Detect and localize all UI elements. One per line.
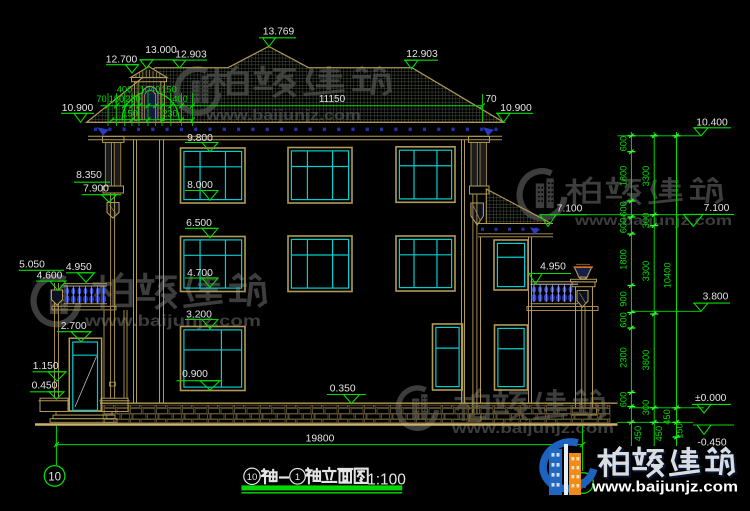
svg-text:7.900: 7.900 (83, 183, 109, 194)
svg-text:450: 450 (662, 409, 672, 425)
svg-text:10: 10 (48, 471, 61, 483)
svg-text:1800: 1800 (618, 166, 628, 187)
svg-text:13.769: 13.769 (263, 26, 295, 37)
svg-text:150: 150 (109, 94, 125, 104)
svg-text:150: 150 (161, 85, 177, 95)
svg-text:0.450: 0.450 (32, 380, 58, 391)
svg-text:1800: 1800 (618, 249, 628, 270)
svg-text:10.900: 10.900 (500, 103, 532, 114)
svg-text:10.400: 10.400 (696, 117, 728, 128)
svg-text:70: 70 (96, 94, 106, 104)
svg-text:450: 450 (654, 426, 664, 442)
svg-text:3800: 3800 (641, 350, 651, 371)
svg-text:300: 300 (641, 400, 651, 416)
svg-text:1040: 1040 (140, 85, 161, 95)
svg-text:12.903: 12.903 (175, 49, 207, 60)
svg-text:3.200: 3.200 (186, 309, 212, 320)
svg-text:230: 230 (125, 94, 141, 104)
svg-text:0.350: 0.350 (330, 384, 356, 395)
svg-text:900: 900 (618, 291, 628, 307)
svg-text:0.900: 0.900 (182, 369, 208, 380)
svg-text:3300: 3300 (641, 261, 651, 282)
svg-text:5.050: 5.050 (19, 259, 45, 270)
svg-text:8.350: 8.350 (76, 170, 102, 181)
svg-text:230: 230 (162, 109, 178, 119)
svg-text:600: 600 (618, 218, 628, 234)
svg-text:7.100: 7.100 (704, 203, 730, 214)
svg-text:13.000: 13.000 (145, 45, 177, 56)
svg-text:400: 400 (172, 94, 188, 104)
svg-text:600: 600 (618, 392, 628, 408)
svg-text:6.500: 6.500 (186, 218, 212, 229)
svg-text:10400: 10400 (662, 262, 672, 288)
svg-text:19800: 19800 (306, 433, 335, 444)
svg-text:4.950: 4.950 (540, 262, 566, 273)
svg-text:450: 450 (633, 426, 643, 442)
svg-text:7.100: 7.100 (557, 204, 583, 215)
svg-text:2.700: 2.700 (61, 321, 87, 332)
svg-text:150: 150 (675, 423, 685, 439)
svg-text:3300: 3300 (641, 166, 651, 187)
svg-text:www.baijunjz.com: www.baijunjz.com (591, 479, 738, 496)
svg-text:11150: 11150 (319, 94, 346, 105)
svg-text:1: 1 (295, 472, 300, 483)
svg-text:12.700: 12.700 (106, 55, 138, 66)
svg-text:1.150: 1.150 (33, 361, 59, 372)
svg-text:300: 300 (641, 213, 651, 229)
svg-text:-0.450: -0.450 (697, 437, 726, 448)
svg-text:3.800: 3.800 (703, 291, 729, 302)
svg-text:70: 70 (485, 94, 497, 105)
svg-text:10.900: 10.900 (62, 103, 94, 114)
svg-text:8.000: 8.000 (187, 180, 213, 191)
svg-text:600: 600 (618, 201, 628, 217)
svg-text:600: 600 (618, 312, 628, 328)
svg-text:2300: 2300 (618, 347, 628, 368)
svg-text:12.903: 12.903 (406, 49, 438, 60)
svg-text:4.600: 4.600 (37, 271, 63, 282)
svg-text:10: 10 (247, 472, 258, 483)
svg-text:4.950: 4.950 (66, 262, 92, 273)
svg-text:±0.000: ±0.000 (695, 393, 727, 404)
svg-text:400: 400 (117, 85, 133, 95)
svg-text:600: 600 (618, 136, 628, 152)
svg-text:150: 150 (122, 109, 138, 119)
